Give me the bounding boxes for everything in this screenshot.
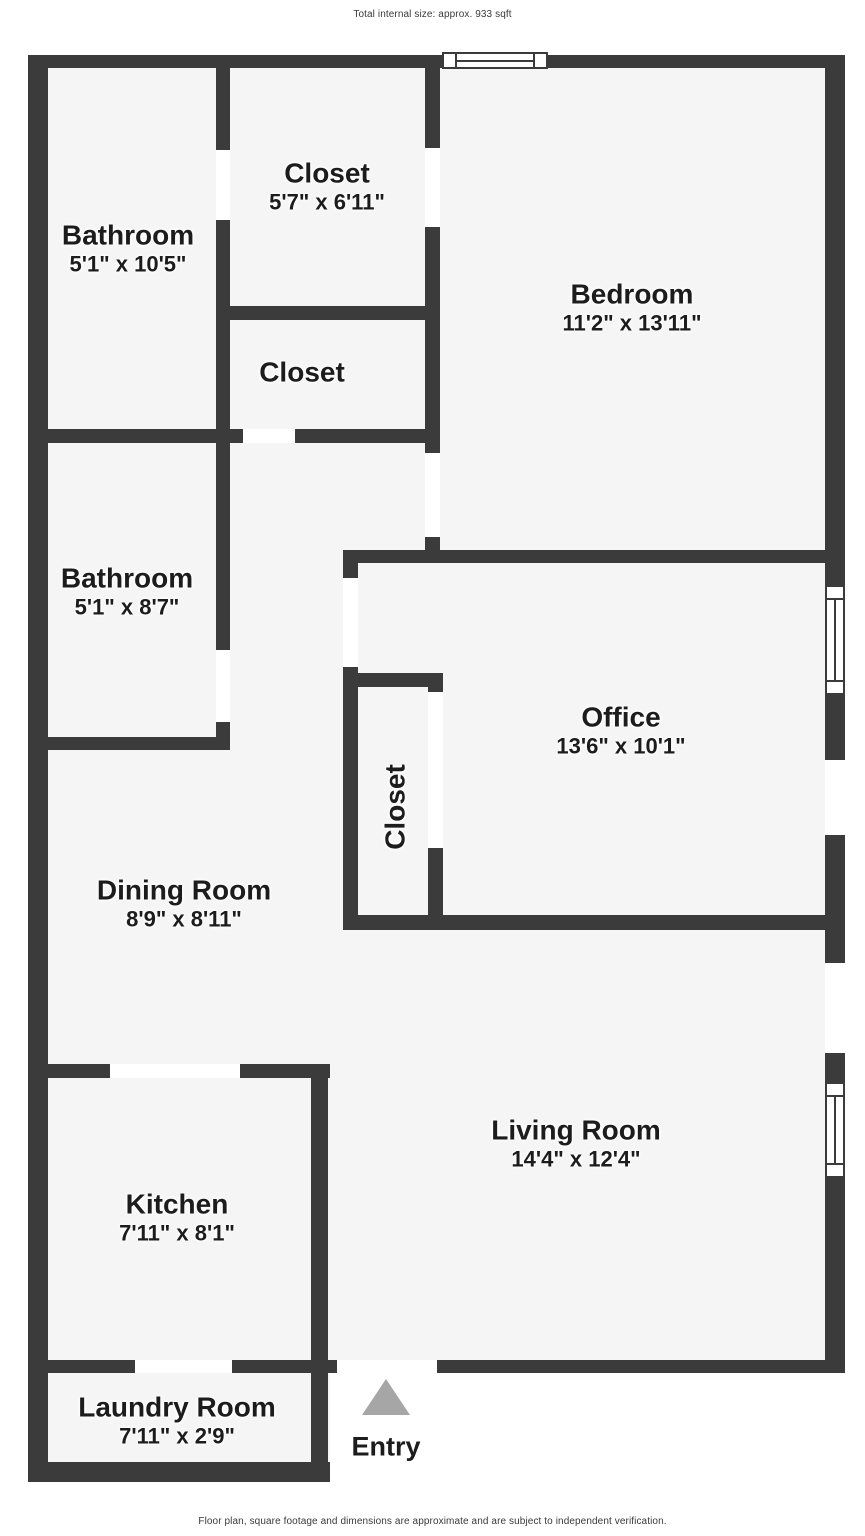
room-label-kitchen: Kitchen 7'11" x 8'1"	[119, 1188, 235, 1247]
room-name: Bathroom	[61, 562, 193, 595]
room-name: Closet	[259, 355, 345, 388]
room-name: Office	[556, 701, 685, 734]
door-opening-office-closet	[428, 692, 443, 848]
door-opening-bedroom-hall	[425, 453, 440, 537]
room-dimensions: 5'1" x 8'7"	[61, 595, 193, 621]
room-label-laundry-room: Laundry Room 7'11" x 2'9"	[78, 1391, 276, 1450]
wall-kitchen-right	[311, 1064, 328, 1482]
room-label-bathroom-1: Bathroom 5'1" x 10'5"	[62, 219, 194, 278]
room-dimensions: 7'11" x 8'1"	[119, 1221, 235, 1247]
room-dimensions: 7'11" x 2'9"	[78, 1424, 276, 1450]
door-opening-bathroom1-closet1	[216, 150, 230, 220]
wall-office-top	[343, 550, 845, 563]
wall-outer-left	[28, 55, 48, 1482]
room-name: Laundry Room	[78, 1391, 276, 1424]
room-dimensions: 5'1" x 10'5"	[62, 252, 194, 278]
room-label-closet-1: Closet 5'7" x 6'11"	[269, 157, 385, 216]
room-label-living-room: Living Room 14'4" x 12'4"	[491, 1114, 661, 1173]
door-opening-bathroom2	[216, 650, 230, 722]
door-opening-closet1-bedroom	[425, 148, 440, 227]
room-dimensions: 8'9" x 8'11"	[97, 907, 271, 933]
opening-dining-kitchen	[110, 1064, 240, 1078]
room-dimensions: 13'6" x 10'1"	[556, 734, 685, 760]
disclaimer: Floor plan, square footage and dimension…	[0, 1516, 865, 1527]
door-opening-office-exterior	[825, 760, 845, 835]
door-opening-closet2-hall	[243, 429, 295, 443]
door-opening-living-exterior	[825, 963, 845, 1053]
room-label-office: Office 13'6" x 10'1"	[556, 701, 685, 760]
room-name: Bathroom	[62, 219, 194, 252]
room-name: Living Room	[491, 1114, 661, 1147]
room-dimensions: 11'2" x 13'11"	[562, 311, 701, 337]
total-size-label: Total internal size: approx. 933 sqft	[0, 9, 865, 20]
room-name: Closet	[269, 157, 385, 190]
window-office-icon	[825, 585, 845, 695]
room-label-bathroom-2: Bathroom 5'1" x 8'7"	[61, 562, 193, 621]
room-name: Kitchen	[119, 1188, 235, 1221]
room-label-closet-3: Closet	[378, 764, 411, 850]
room-label-dining-room: Dining Room 8'9" x 8'11"	[97, 874, 271, 933]
door-opening-entry	[337, 1360, 437, 1373]
wall-closet1-bottom	[216, 306, 440, 320]
floor-plan-page: Total internal size: approx. 933 sqft	[0, 0, 865, 1536]
entry-arrow-icon	[362, 1379, 410, 1415]
room-label-closet-2: Closet	[259, 355, 345, 388]
wall-laundry-bottom	[28, 1462, 330, 1482]
window-bedroom-icon	[442, 52, 548, 69]
wall-office-bottom	[343, 915, 845, 930]
room-label-bedroom: Bedroom 11'2" x 13'11"	[562, 278, 701, 337]
room-name: Closet	[378, 764, 411, 850]
room-dimensions: 5'7" x 6'11"	[269, 190, 385, 216]
room-name: Dining Room	[97, 874, 271, 907]
door-opening-office	[343, 578, 358, 667]
room-dimensions: 14'4" x 12'4"	[491, 1147, 661, 1173]
room-name: Bedroom	[562, 278, 701, 311]
entry-label: Entry	[351, 1432, 420, 1463]
wall-closet2-bottom	[28, 429, 440, 443]
door-opening-kitchen-laundry	[135, 1360, 232, 1373]
wall-bathroom2-bottom	[28, 737, 230, 750]
window-living-room-icon	[825, 1082, 845, 1178]
